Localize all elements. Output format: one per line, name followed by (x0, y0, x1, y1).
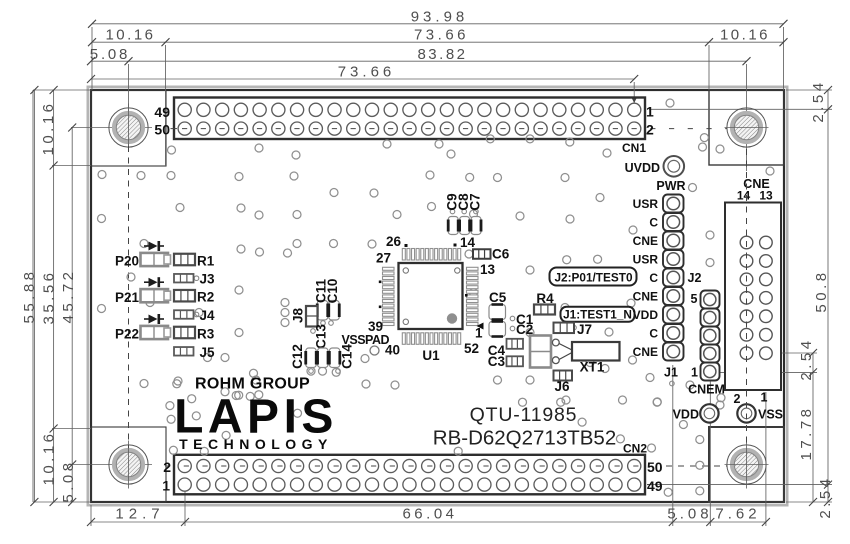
svg-text:26: 26 (386, 234, 402, 249)
svg-text:10.16: 10.16 (41, 430, 58, 485)
svg-text:83.82: 83.82 (417, 46, 467, 63)
svg-text:C: C (649, 216, 658, 230)
svg-text:C5: C5 (489, 290, 507, 305)
svg-text:5.08: 5.08 (60, 459, 77, 502)
svg-text:P20: P20 (115, 254, 139, 269)
svg-text:50.8: 50.8 (813, 269, 830, 312)
svg-text:2.54: 2.54 (817, 475, 834, 518)
svg-text:C7: C7 (467, 193, 482, 210)
svg-text:2: 2 (734, 392, 741, 406)
svg-text:35.56: 35.56 (41, 269, 58, 324)
svg-text:TECHNOLOGY: TECHNOLOGY (179, 436, 333, 452)
svg-text:5: 5 (691, 292, 698, 306)
svg-text:55.88: 55.88 (21, 268, 38, 323)
svg-text:C10: C10 (325, 279, 340, 304)
svg-text:C: C (649, 271, 658, 285)
svg-text:J3: J3 (200, 272, 216, 287)
svg-text:CNE: CNE (633, 345, 658, 359)
svg-text:J4: J4 (200, 308, 216, 323)
svg-text:50: 50 (154, 122, 170, 138)
svg-text:R1: R1 (197, 254, 215, 269)
svg-text:C13: C13 (314, 324, 329, 349)
svg-text:CNE: CNE (633, 234, 658, 248)
svg-text:39: 39 (368, 319, 383, 334)
svg-text:VDD: VDD (673, 407, 699, 421)
svg-text:J1:TEST1_N: J1:TEST1_N (563, 308, 632, 322)
svg-text:R3: R3 (197, 327, 215, 342)
svg-text:1: 1 (761, 391, 768, 405)
svg-text:C: C (649, 327, 658, 341)
svg-text:93.98: 93.98 (411, 9, 469, 26)
svg-text:VSS: VSS (758, 407, 783, 421)
svg-text:49: 49 (647, 478, 663, 494)
svg-text:QTU-11985: QTU-11985 (470, 404, 578, 426)
svg-text:UVDD: UVDD (625, 161, 660, 175)
svg-text:CN2: CN2 (623, 442, 647, 456)
svg-text:17.78: 17.78 (798, 405, 815, 460)
svg-text:5.08: 5.08 (90, 46, 130, 63)
svg-text:PWR: PWR (656, 179, 685, 193)
svg-text:P22: P22 (115, 327, 139, 342)
svg-text:10.16: 10.16 (105, 27, 155, 44)
svg-text:13: 13 (759, 189, 773, 203)
svg-text:XT1: XT1 (580, 360, 605, 375)
svg-text:73.66: 73.66 (414, 27, 469, 44)
svg-text:J6: J6 (554, 379, 570, 394)
svg-text:27: 27 (376, 251, 391, 266)
svg-text:1: 1 (691, 366, 698, 380)
svg-text:C12: C12 (290, 344, 305, 369)
svg-text:2: 2 (163, 459, 171, 475)
svg-text:USR: USR (633, 197, 659, 211)
svg-text:2.54: 2.54 (810, 79, 827, 122)
svg-text:1: 1 (162, 478, 170, 494)
svg-text:RB-D62Q2713TB52: RB-D62Q2713TB52 (433, 427, 616, 450)
svg-text:1: 1 (646, 104, 654, 120)
svg-text:10.16: 10.16 (40, 100, 57, 155)
svg-text:12.7: 12.7 (115, 506, 164, 523)
svg-text:VDD: VDD (633, 308, 659, 322)
svg-text:45.72: 45.72 (60, 268, 77, 323)
svg-text:14: 14 (737, 189, 751, 203)
svg-text:J2: J2 (688, 271, 702, 285)
svg-text:CN1: CN1 (622, 141, 646, 155)
svg-text:2: 2 (646, 122, 654, 138)
svg-text:R2: R2 (197, 290, 214, 305)
svg-text:5.08: 5.08 (667, 506, 712, 523)
svg-text:J2:P01/TEST0: J2:P01/TEST0 (554, 270, 632, 284)
svg-text:7.62: 7.62 (715, 506, 760, 523)
svg-text:U1: U1 (422, 348, 440, 363)
svg-text:49: 49 (154, 104, 170, 120)
svg-text:USR: USR (633, 253, 659, 267)
svg-text:P21: P21 (115, 290, 140, 305)
svg-text:2.54: 2.54 (798, 337, 815, 380)
svg-text:C6: C6 (492, 247, 510, 262)
svg-text:J5: J5 (200, 345, 216, 360)
svg-text:13: 13 (480, 262, 496, 277)
svg-text:J8: J8 (291, 308, 306, 324)
svg-text:50: 50 (647, 459, 663, 475)
svg-text:C14: C14 (340, 344, 355, 369)
svg-text:C3: C3 (488, 354, 506, 369)
svg-text:52: 52 (464, 341, 479, 356)
svg-text:J1: J1 (664, 366, 678, 380)
svg-text:10.16: 10.16 (720, 27, 770, 44)
svg-text:14: 14 (460, 235, 476, 250)
svg-text:J7: J7 (577, 322, 592, 337)
svg-text:73.66: 73.66 (338, 64, 396, 81)
svg-text:66.04: 66.04 (402, 506, 457, 523)
svg-text:CNE: CNE (633, 290, 658, 304)
svg-text:CNEM: CNEM (688, 383, 725, 397)
